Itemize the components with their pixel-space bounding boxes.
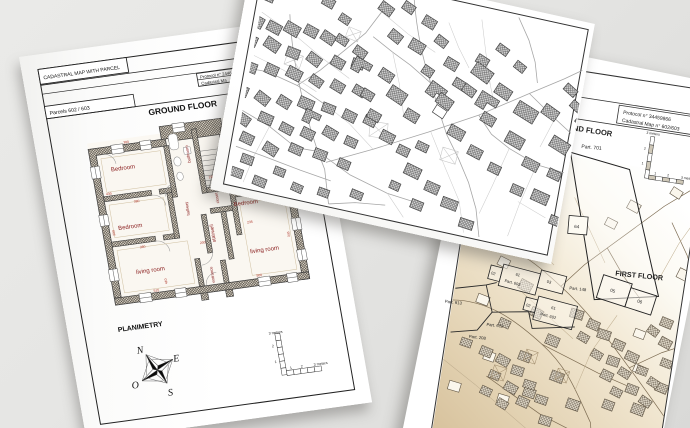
- svg-text:515: 515: [153, 288, 159, 293]
- svg-text:64: 64: [574, 224, 580, 229]
- svg-text:Part. 701: Part. 701: [581, 144, 602, 152]
- svg-text:380: 380: [123, 140, 129, 145]
- svg-text:S: S: [167, 387, 174, 399]
- svg-text:GROUND FLOOR: GROUND FLOOR: [148, 98, 218, 117]
- svg-text:380: 380: [139, 245, 145, 250]
- svg-text:380: 380: [133, 199, 139, 204]
- svg-text:N: N: [135, 345, 146, 357]
- svg-text:2: 2: [644, 146, 647, 150]
- svg-text:O: O: [131, 380, 140, 392]
- svg-text:2: 2: [272, 344, 275, 348]
- svg-text:500: 500: [256, 273, 262, 278]
- svg-text:E: E: [171, 353, 180, 365]
- svg-text:1: 1: [290, 366, 293, 370]
- svg-text:1: 1: [274, 360, 277, 364]
- svg-text:200: 200: [200, 240, 206, 245]
- svg-text:3 meters: 3 meters: [646, 131, 660, 137]
- svg-text:Part. 613: Part. 613: [445, 299, 463, 306]
- svg-text:PLANIMETRY: PLANIMETRY: [117, 321, 163, 334]
- svg-text:235: 235: [247, 220, 253, 225]
- svg-text:1: 1: [641, 161, 644, 165]
- svg-text:430: 430: [106, 192, 112, 197]
- svg-text:2: 2: [301, 364, 304, 368]
